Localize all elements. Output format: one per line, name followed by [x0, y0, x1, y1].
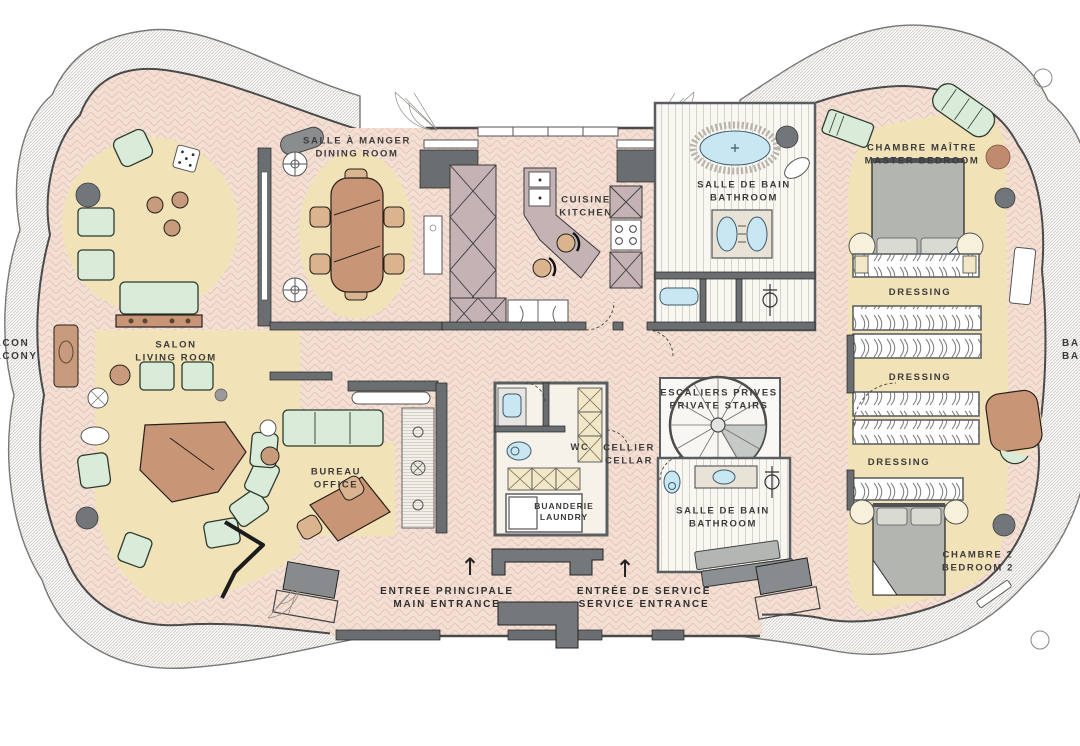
- sink: [713, 470, 735, 484]
- cooktop: [611, 220, 641, 250]
- label-dining-room: SALLE À MANGER DINING ROOM: [303, 136, 411, 161]
- label-dressing-3: DRESSING: [868, 457, 930, 470]
- label-kitchen: CUISINE KITCHEN: [559, 195, 612, 220]
- sofa: [120, 282, 198, 314]
- main-entrance-arrow: ↑: [460, 553, 480, 581]
- label-balcony-left: BALCON BALCONY: [0, 337, 38, 363]
- label-balcony-right: BALCON BALCONY: [1062, 337, 1080, 363]
- plant-pot: [76, 183, 100, 207]
- label-master-bedroom: CHAMBRE MAÎTRE MASTER BEDROOM: [865, 143, 980, 168]
- dining-table: [331, 178, 383, 292]
- balcony-table: [1031, 631, 1049, 649]
- vanity-table: [984, 389, 1044, 454]
- label-main-entrance: ENTREE PRINCIPALE MAIN ENTRANCE: [380, 585, 514, 611]
- label-service-entrance: ENTRÉE DE SERVICE SERVICE ENTRANCE: [577, 585, 711, 611]
- master-bathroom: [655, 103, 815, 330]
- label-dressing-1: DRESSING: [889, 287, 951, 300]
- label-wc: WC: [570, 442, 589, 455]
- label-dressing-2: DRESSING: [889, 372, 951, 385]
- label-laundry: BUANDERIE LAUNDRY: [534, 501, 594, 523]
- washer: [509, 497, 537, 529]
- console: [54, 325, 78, 387]
- label-bedroom-2: CHAMBRE 2 BEDROOM 2: [942, 550, 1014, 575]
- label-living-room: SALON LIVING ROOM: [135, 340, 216, 365]
- label-private-stairs: ESCALIERS PRIVES PRIVATE STAIRS: [660, 388, 777, 413]
- floor-plan: SALLE À MANGER DINING ROOM CUISINE KITCH…: [0, 0, 1080, 746]
- label-office: BUREAU OFFICE: [311, 467, 361, 492]
- hand-basin: [503, 394, 521, 417]
- label-cellar: CELLIER CELLAR: [603, 443, 655, 468]
- service-entrance-arrow: ↑: [615, 555, 635, 583]
- balcony-table: [1034, 69, 1052, 87]
- office-sofa: [283, 410, 383, 446]
- label-master-bathroom: SALLE DE BAIN BATHROOM: [697, 180, 791, 205]
- bidet-tub: [660, 288, 698, 305]
- label-bathroom-2: SALLE DE BAIN BATHROOM: [676, 506, 770, 531]
